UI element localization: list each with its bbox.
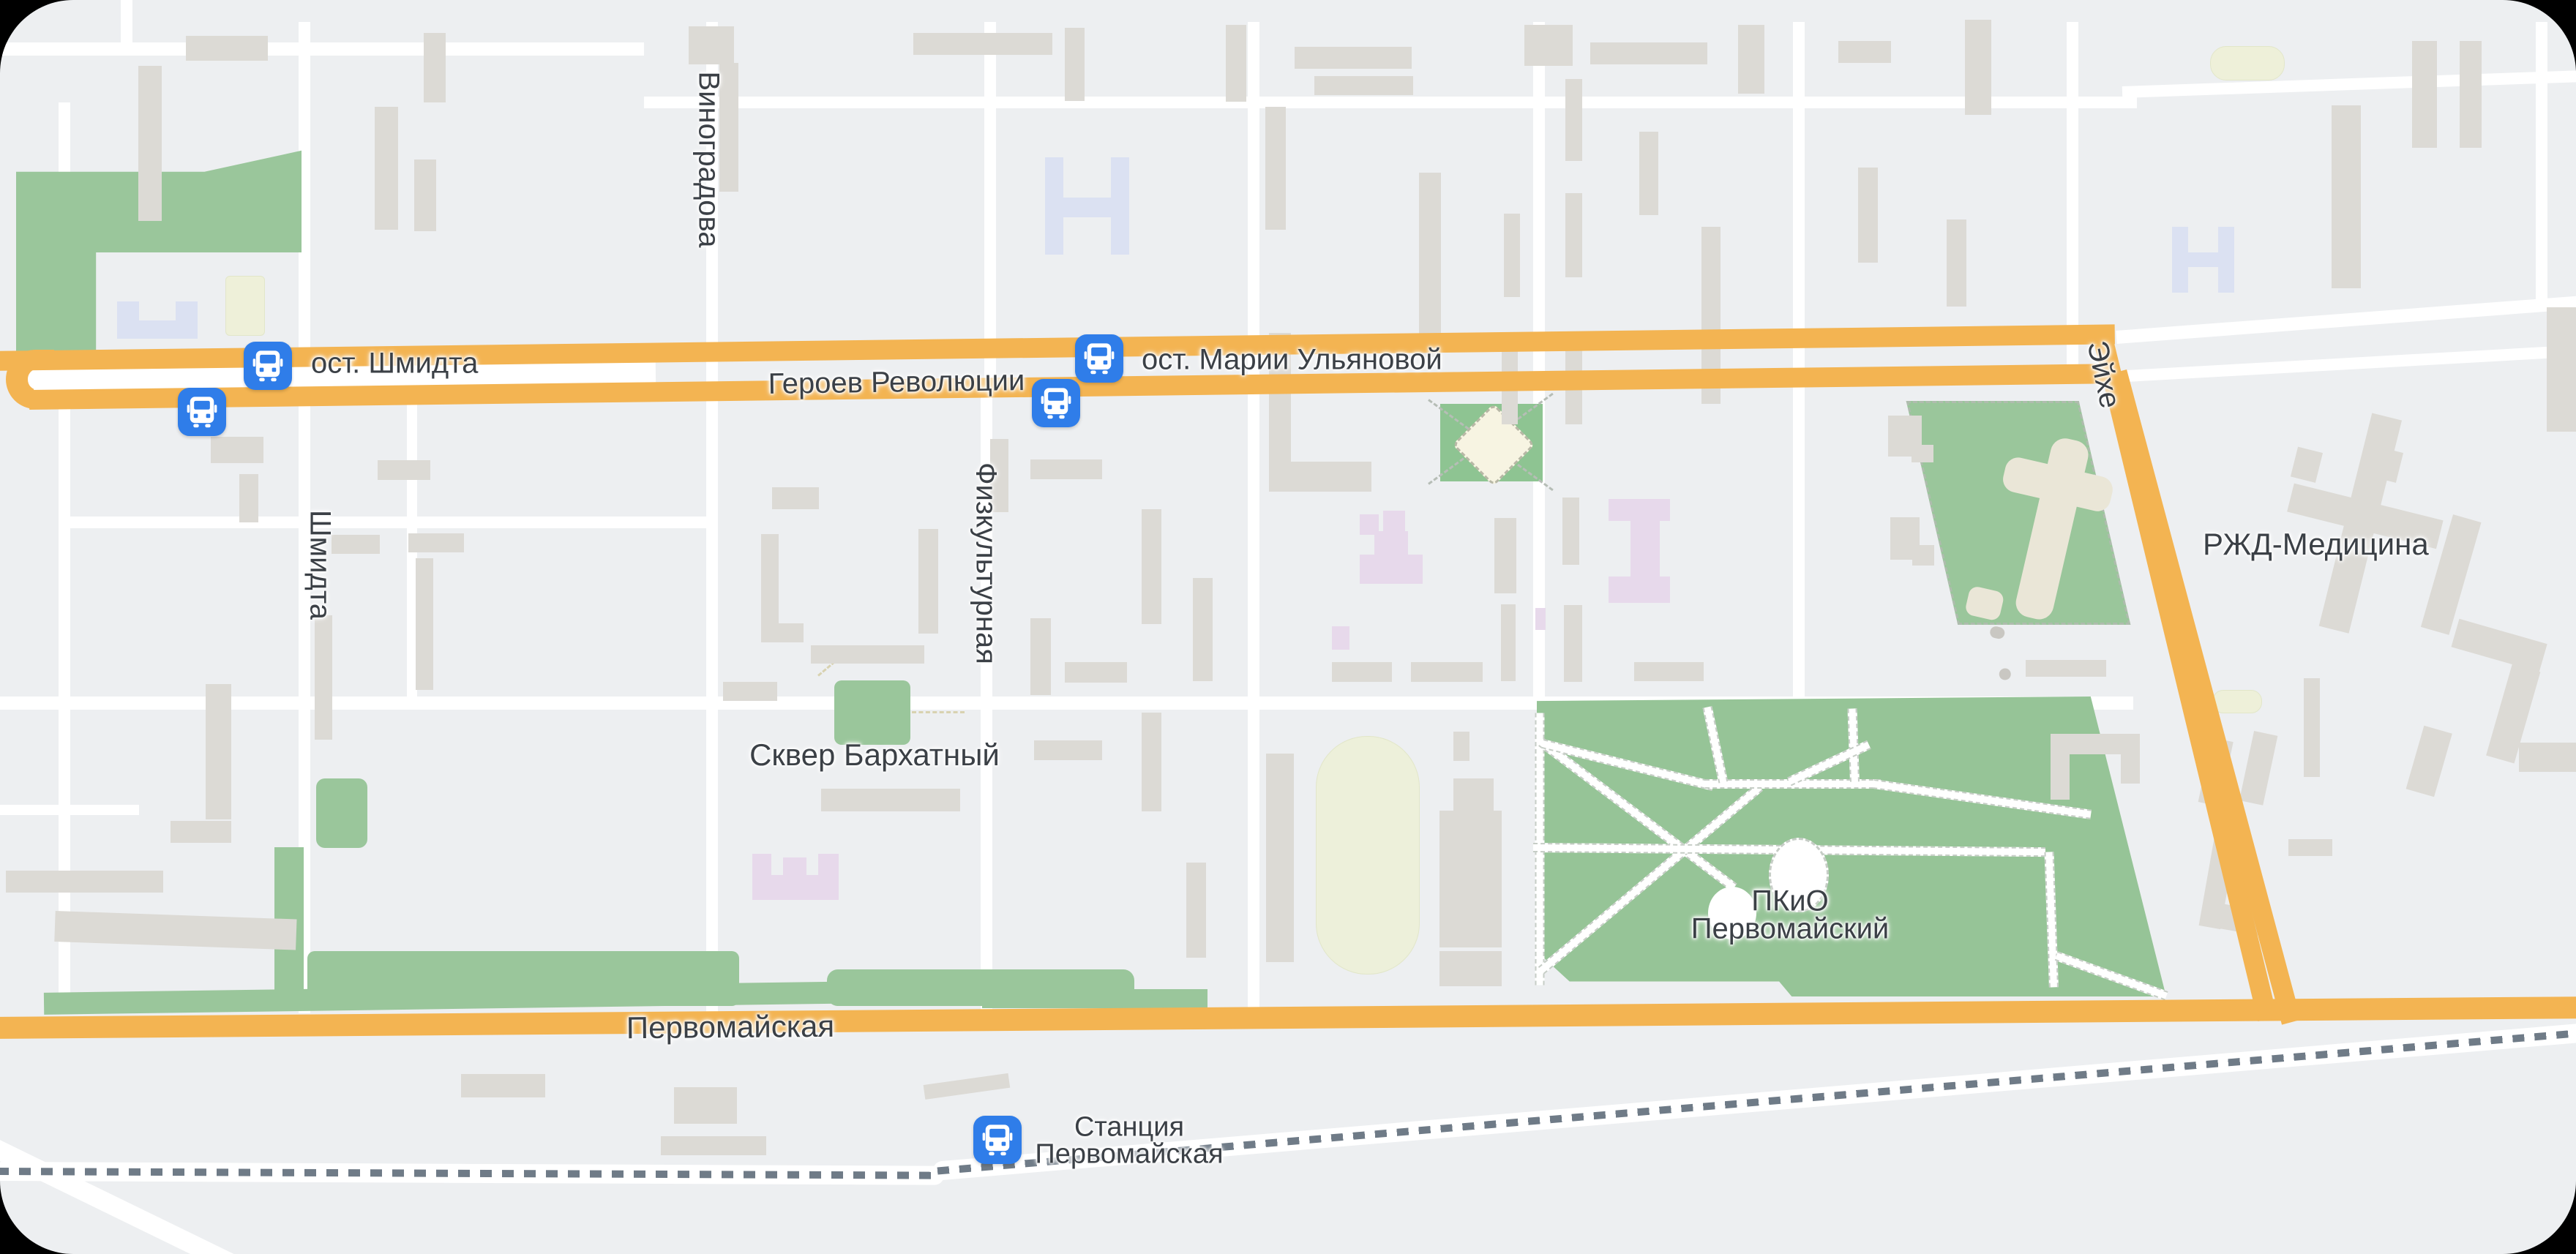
street [1248,22,1259,1013]
building [2051,754,2070,800]
building [2051,734,2140,754]
building [2451,619,2547,672]
street [2536,22,2547,307]
stop-label-marii-ulyanovoy[interactable]: ост. Марии Ульяновой [1142,344,1442,377]
building [761,623,804,642]
building [2519,743,2576,772]
building [1439,951,1502,986]
building [674,1087,737,1124]
building [913,33,1052,55]
place-label-skver-barkhatny[interactable]: Сквер Бархатный [749,737,1000,773]
building [1439,811,1502,947]
school-building [1360,555,1423,584]
street [0,1131,298,1254]
building [1314,76,1413,95]
building [1265,107,1286,230]
building [1562,498,1579,565]
building [2121,754,2140,784]
public-building [2172,227,2188,293]
building [924,1073,1011,1100]
street [0,805,139,815]
building [239,474,258,522]
building [1965,20,1991,115]
street [64,517,716,528]
building [1034,740,1102,760]
map-canvas[interactable]: Героев Революции Первомайская Шмидта Вин… [0,0,2576,1254]
building [1494,518,1516,593]
building [1565,79,1582,161]
path-stub [912,711,965,713]
school-building [752,854,771,876]
road-label-geroev-revolyutsii: Героев Революции [768,364,1025,401]
building [1590,42,1707,64]
building [315,615,332,740]
building [6,871,163,893]
green-patch [316,778,367,848]
school-building [1332,626,1349,650]
building [424,33,446,102]
building [414,159,436,231]
public-building [139,320,176,339]
street [1793,22,1805,697]
building [1504,214,1520,297]
building [821,789,960,811]
building [761,534,779,629]
building [1858,168,1878,263]
building [1453,778,1494,811]
building [2332,105,2361,288]
bus-stop-icon[interactable] [244,342,292,390]
stop-label-station-line2[interactable]: Первомайская [1035,1139,1223,1171]
building [1639,132,1658,215]
building [1065,662,1127,683]
street [644,97,2137,108]
school-building [1374,531,1408,555]
building [2547,307,2576,432]
building [378,460,430,480]
public-building [1063,198,1111,217]
bus-stop-icon[interactable] [1075,334,1123,383]
school-building [1535,608,1546,630]
public-building [1111,157,1129,255]
school-building [1609,577,1670,603]
street [2127,345,2576,382]
public-building [2218,227,2234,293]
building [186,36,268,61]
place-label-rzhd-meditsina[interactable]: РЖД-Медицина [2203,527,2429,562]
bus-stop-icon[interactable] [973,1116,1022,1164]
street [2116,296,2576,344]
building [1030,618,1051,695]
building [1564,605,1582,682]
public-building [1045,157,1063,255]
building [211,437,263,463]
place-label-pkio-line2[interactable]: Первомайский [1691,913,1890,946]
building [171,821,231,843]
building [1838,41,1891,63]
building [1065,28,1085,101]
field [225,276,265,336]
bus-stop-icon[interactable] [1032,379,1080,427]
school-building [818,854,839,876]
field [2210,46,2285,80]
building [1291,462,1371,492]
building [811,645,924,664]
building [54,911,296,950]
road-label-fizkulturnaya: Физкультурная [970,462,1003,664]
public-building [117,301,139,339]
building [2026,660,2106,677]
building [1453,732,1469,761]
building [1738,25,1764,94]
building [1030,459,1102,479]
building [138,66,162,221]
field [2212,690,2262,713]
road-label-pervomayskaya: Первомайская [626,1009,835,1045]
building [1186,863,1206,958]
building [408,533,464,552]
street [984,22,996,380]
building [1419,173,1441,357]
building [2304,678,2320,777]
building [1501,604,1516,681]
building [1411,662,1483,682]
building [1226,25,1246,102]
building [2406,726,2452,797]
building [375,107,398,230]
school-building [1609,499,1670,521]
building [1332,662,1392,682]
street [121,0,132,44]
stop-label-shmidta[interactable]: ост. Шмидта [311,348,478,380]
stadium-field [1316,736,1420,975]
public-building [2188,252,2218,267]
school-building [1630,521,1660,577]
building [461,1074,545,1097]
building [1266,754,1294,962]
school-building [752,875,839,900]
building [1947,219,1966,307]
building [1912,545,1934,566]
building [661,1136,766,1155]
building [723,682,777,701]
building [1193,578,1213,681]
building [2460,41,2482,148]
building [2239,731,2277,806]
building [2288,839,2332,856]
street [0,42,644,56]
public-building [176,301,198,339]
building [1142,509,1161,624]
building [1142,713,1161,811]
building [689,26,734,64]
building [1912,445,1933,462]
railway-line [0,1162,944,1185]
building [1295,47,1412,69]
building [918,529,938,634]
building [1524,25,1573,66]
street [2122,70,2576,98]
skver-barkhatny-area [834,680,910,745]
building [2291,447,2323,483]
building [416,558,433,690]
school-building [783,857,806,876]
bus-stop-icon[interactable] [178,388,226,436]
green-strip [827,969,1134,1006]
road-label-vinogradova: Виноградова [692,71,725,247]
street [1533,22,1545,697]
building [1634,662,1704,681]
building [332,535,380,554]
building [2412,41,2437,148]
road-label-eykhe: Эйхе [2080,338,2126,411]
map-window: Героев Революции Первомайская Шмидта Вин… [0,0,2576,1254]
building [1565,193,1582,277]
building [206,684,231,819]
road-label-shmidta: Шмидта [304,510,337,620]
building [772,487,819,509]
